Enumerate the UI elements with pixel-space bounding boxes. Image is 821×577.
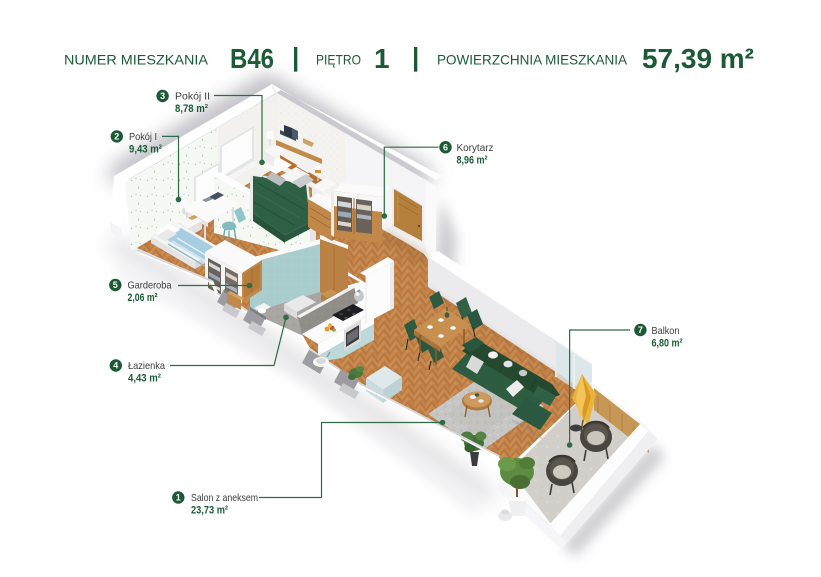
svg-text:23,73 m²: 23,73 m² — [191, 505, 228, 517]
svg-text:6,80 m²: 6,80 m² — [652, 338, 683, 350]
svg-text:Garderoba: Garderoba — [128, 280, 172, 292]
svg-text:PIĘTRO: PIĘTRO — [316, 52, 361, 68]
svg-text:Pokój I: Pokój I — [129, 131, 157, 143]
svg-text:3: 3 — [160, 91, 165, 101]
svg-text:Balkon: Balkon — [652, 325, 680, 337]
svg-text:B46: B46 — [230, 43, 274, 74]
svg-text:7: 7 — [638, 325, 643, 335]
svg-text:2,06 m²: 2,06 m² — [128, 292, 158, 304]
svg-text:4: 4 — [113, 361, 118, 371]
svg-text:8,78 m²: 8,78 m² — [175, 103, 208, 115]
svg-text:8,96 m²: 8,96 m² — [457, 155, 488, 167]
svg-text:Korytarz: Korytarz — [457, 142, 494, 154]
svg-text:NUMER MIESZKANIA: NUMER MIESZKANIA — [64, 52, 209, 68]
svg-text:57,39 m²: 57,39 m² — [642, 43, 754, 74]
svg-text:2: 2 — [114, 132, 119, 142]
svg-text:Łazienka: Łazienka — [128, 360, 165, 372]
svg-text:POWIERZCHNIA MIESZKANIA: POWIERZCHNIA MIESZKANIA — [437, 52, 628, 68]
svg-text:1: 1 — [176, 493, 181, 503]
svg-text:1: 1 — [374, 43, 390, 74]
svg-text:|: | — [412, 42, 419, 72]
svg-text:Salon z aneksem: Salon z aneksem — [191, 492, 258, 504]
svg-text:9,43 m²: 9,43 m² — [129, 144, 162, 156]
svg-text:|: | — [292, 42, 299, 72]
svg-text:Pokój II: Pokój II — [175, 91, 210, 103]
svg-text:6: 6 — [443, 142, 448, 152]
svg-text:5: 5 — [113, 280, 118, 290]
svg-text:4,43 m²: 4,43 m² — [128, 373, 161, 385]
